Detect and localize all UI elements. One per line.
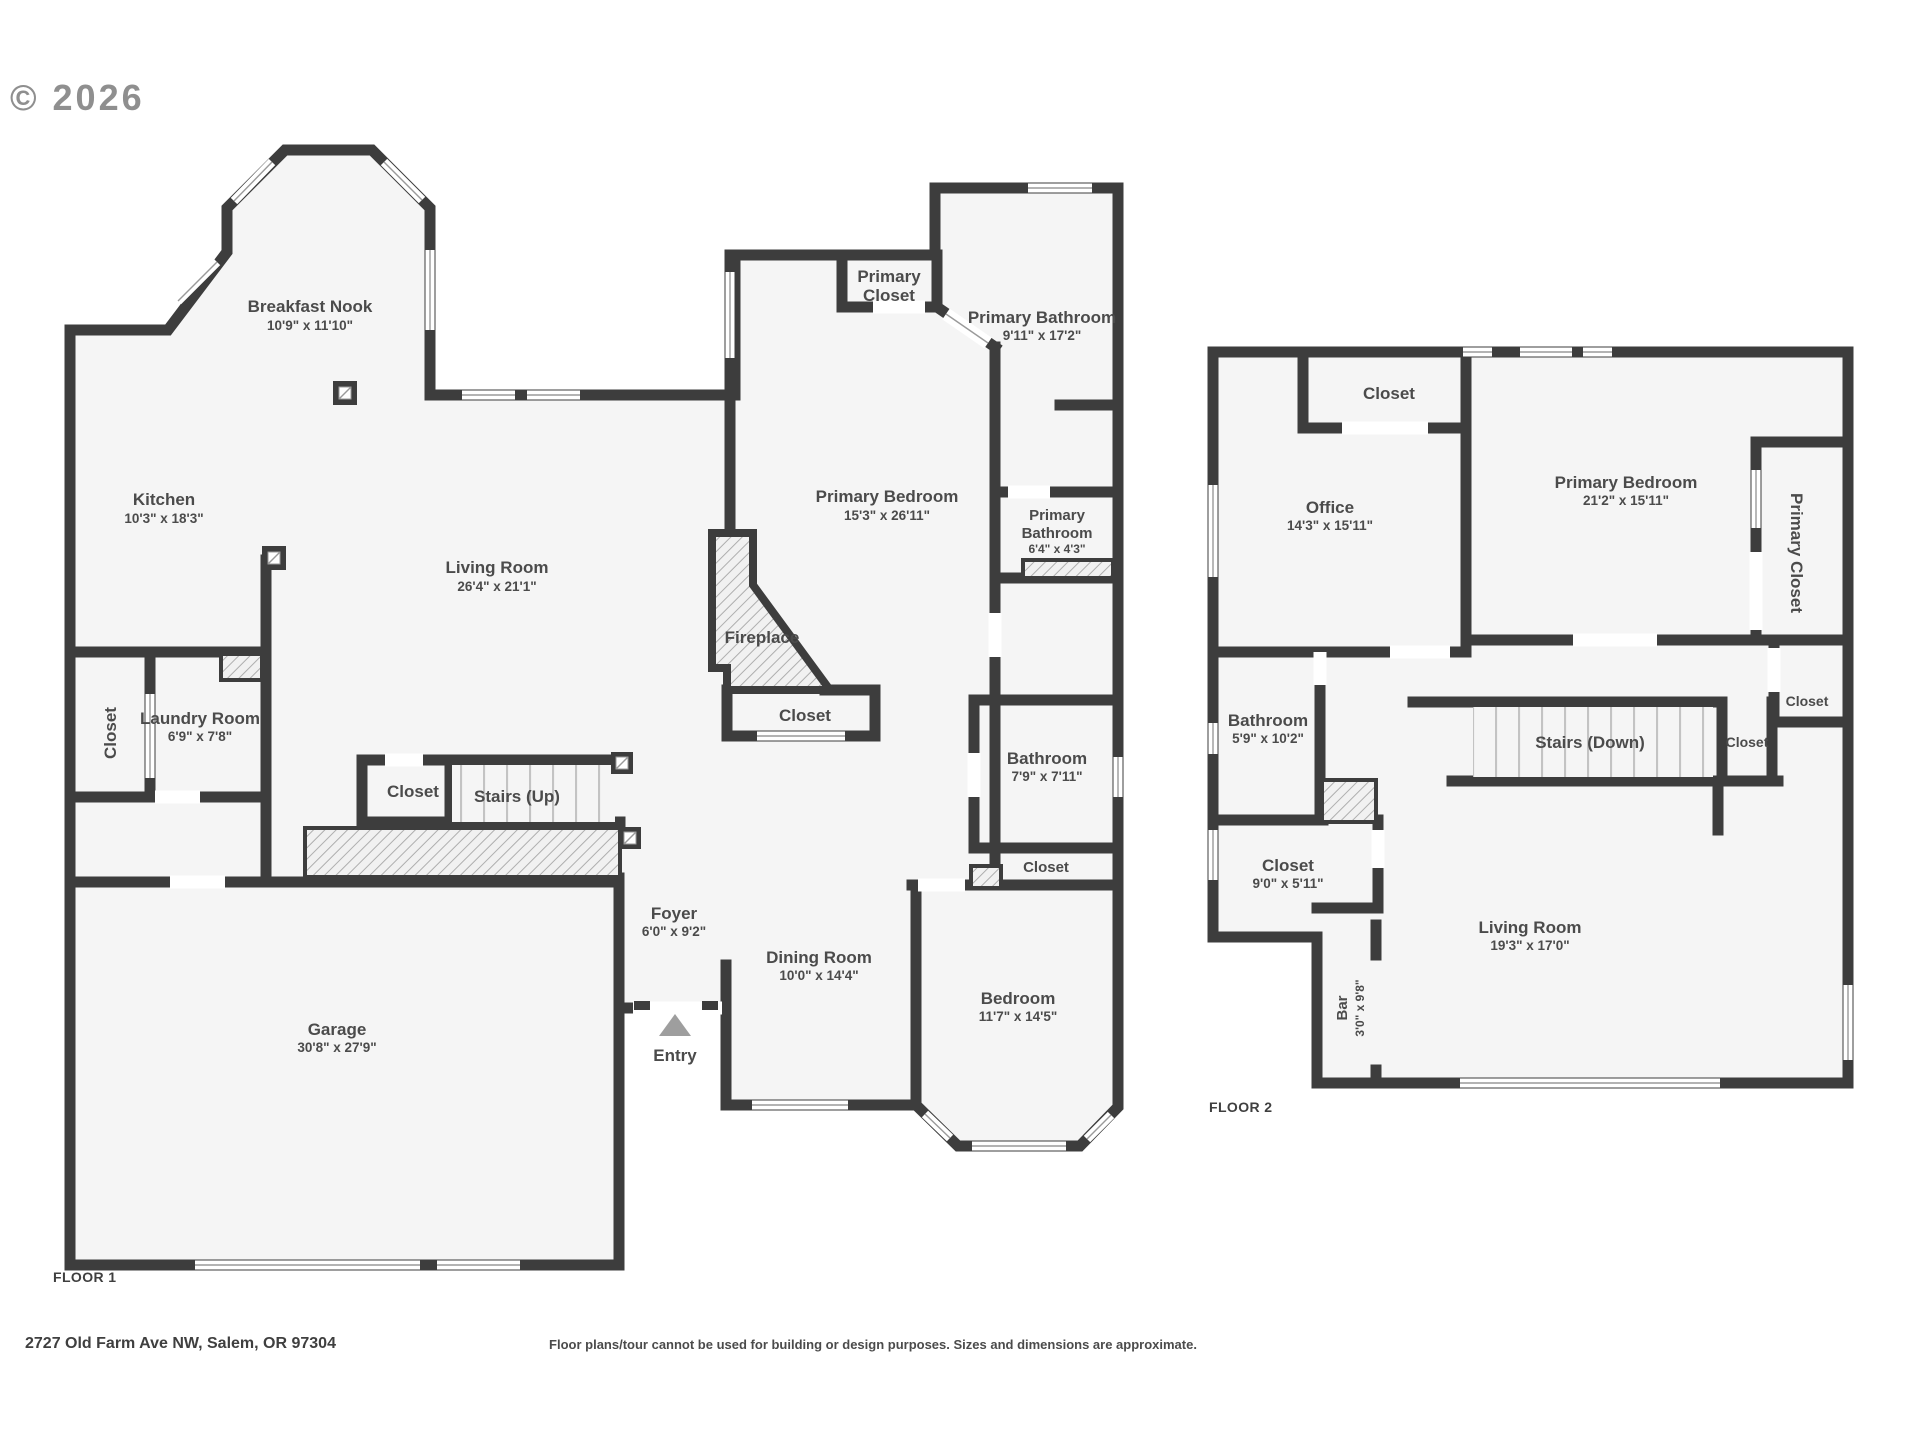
room-label-closet-hall: Closet bbox=[1262, 856, 1314, 875]
copyright-watermark: © 2026 bbox=[10, 77, 145, 118]
room-label-primary-closet-1: Primary bbox=[857, 267, 921, 286]
floor2-plan: Closet Office 14'3" x 15'11" Primary Bed… bbox=[1209, 352, 1848, 1115]
room-label-closet-left: Closet bbox=[101, 707, 120, 759]
room-dims-bar: 3'0" x 9'8" bbox=[1353, 979, 1367, 1036]
floor2-label: FLOOR 2 bbox=[1209, 1099, 1272, 1115]
room-label-bar: Bar bbox=[1334, 995, 1351, 1020]
room-label-primary-closet2: Primary Closet bbox=[1787, 493, 1806, 613]
room-dims-closet-hall: 9'0" x 5'11" bbox=[1252, 876, 1323, 891]
bedroom-door-hatch bbox=[971, 866, 1001, 888]
property-address: 2727 Old Farm Ave NW, Salem, OR 97304 bbox=[25, 1335, 336, 1352]
room-label-primary-bathroom-small-1: Primary bbox=[1029, 507, 1086, 524]
room-dims-foyer: 6'0" x 9'2" bbox=[642, 924, 706, 939]
room-label-closet-right: Closet bbox=[1786, 693, 1829, 709]
floor1-label: FLOOR 1 bbox=[53, 1269, 116, 1285]
floor1-plan: Breakfast Nook 10'9" x 11'10" Kitchen 10… bbox=[53, 150, 1118, 1285]
stair-landing-hatch bbox=[305, 828, 620, 877]
room-label-kitchen: Kitchen bbox=[133, 490, 195, 509]
room-label-stairs-down: Stairs (Down) bbox=[1535, 733, 1645, 752]
room-dims-bathroom2: 5'9" x 10'2" bbox=[1232, 731, 1304, 746]
room-label-primary-closet-2: Closet bbox=[863, 286, 915, 305]
room-dims-living-room: 26'4" x 21'1" bbox=[457, 579, 536, 594]
room-dims-bedroom: 11'7" x 14'5" bbox=[979, 1009, 1058, 1024]
room-label-living-room: Living Room bbox=[446, 558, 549, 577]
vanity-hatch bbox=[1023, 560, 1113, 578]
room-label-primary-bedroom2: Primary Bedroom bbox=[1555, 473, 1698, 492]
room-label-closet-fireplace: Closet bbox=[779, 706, 831, 725]
footer: 2727 Old Farm Ave NW, Salem, OR 97304 Fl… bbox=[25, 1335, 1197, 1352]
room-label-dining: Dining Room bbox=[766, 948, 872, 967]
floor-plan-canvas: © 2026 bbox=[0, 0, 1920, 1440]
room-dims-kitchen: 10'3" x 18'3" bbox=[124, 511, 203, 526]
room-dims-primary-bathroom-large: 9'11" x 17'2" bbox=[1003, 328, 1082, 343]
room-label-closet-bedroom: Closet bbox=[1023, 859, 1069, 876]
room-label-breakfast-nook: Breakfast Nook bbox=[248, 297, 373, 316]
room-dims-laundry: 6'9" x 7'8" bbox=[168, 729, 232, 744]
room-dims-bathroom1: 7'9" x 7'11" bbox=[1011, 769, 1082, 784]
room-dims-breakfast-nook: 10'9" x 11'10" bbox=[267, 318, 353, 333]
laundry-fixture-hatch bbox=[221, 654, 262, 680]
room-label-bathroom2: Bathroom bbox=[1228, 711, 1308, 730]
room-label-office: Office bbox=[1306, 498, 1354, 517]
room-dims-primary-bedroom2: 21'2" x 15'11" bbox=[1583, 493, 1669, 508]
room-label-fireplace: Fireplace bbox=[725, 628, 800, 647]
floor-plan-page: © 2026 bbox=[0, 0, 1920, 1440]
room-dims-primary-bathroom-small: 6'4" x 4'3" bbox=[1028, 542, 1085, 556]
room-label-closet-stairs: Closet bbox=[387, 782, 439, 801]
room-dims-living-room2: 19'3" x 17'0" bbox=[1490, 938, 1569, 953]
entry-arrow-icon bbox=[659, 1014, 691, 1036]
room-label-closet-stairs2: Closet bbox=[1726, 734, 1769, 750]
room-label-bathroom1: Bathroom bbox=[1007, 749, 1087, 768]
disclaimer-text: Floor plans/tour cannot be used for buil… bbox=[549, 1337, 1197, 1352]
room-label-entry: Entry bbox=[653, 1046, 697, 1065]
room-label-primary-bedroom: Primary Bedroom bbox=[816, 487, 959, 506]
room-label-garage: Garage bbox=[308, 1020, 367, 1039]
room-label-primary-bathroom-large: Primary Bathroom bbox=[968, 308, 1116, 327]
room-dims-dining: 10'0" x 14'4" bbox=[779, 968, 858, 983]
room-label-laundry: Laundry Room bbox=[140, 709, 260, 728]
room-dims-office: 14'3" x 15'11" bbox=[1287, 518, 1373, 533]
floor2-hall-hatch bbox=[1322, 780, 1376, 822]
room-label-stairs-up: Stairs (Up) bbox=[474, 787, 560, 806]
room-label-bedroom: Bedroom bbox=[981, 989, 1056, 1008]
room-label-foyer: Foyer bbox=[651, 904, 698, 923]
room-label-living-room2: Living Room bbox=[1479, 918, 1582, 937]
room-label-primary-bathroom-small-2: Bathroom bbox=[1022, 525, 1093, 542]
room-dims-garage: 30'8" x 27'9" bbox=[297, 1040, 376, 1055]
room-dims-primary-bedroom: 15'3" x 26'11" bbox=[844, 508, 930, 523]
room-label-closet-office: Closet bbox=[1363, 384, 1415, 403]
